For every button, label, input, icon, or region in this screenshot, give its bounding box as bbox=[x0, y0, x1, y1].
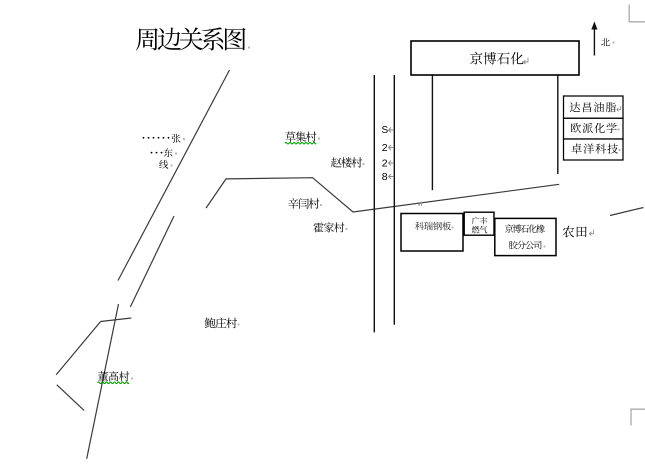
svg-text:8: 8 bbox=[382, 171, 388, 183]
svg-text:2: 2 bbox=[382, 157, 388, 169]
svg-text:2: 2 bbox=[382, 142, 388, 154]
svg-text:S: S bbox=[382, 125, 389, 136]
